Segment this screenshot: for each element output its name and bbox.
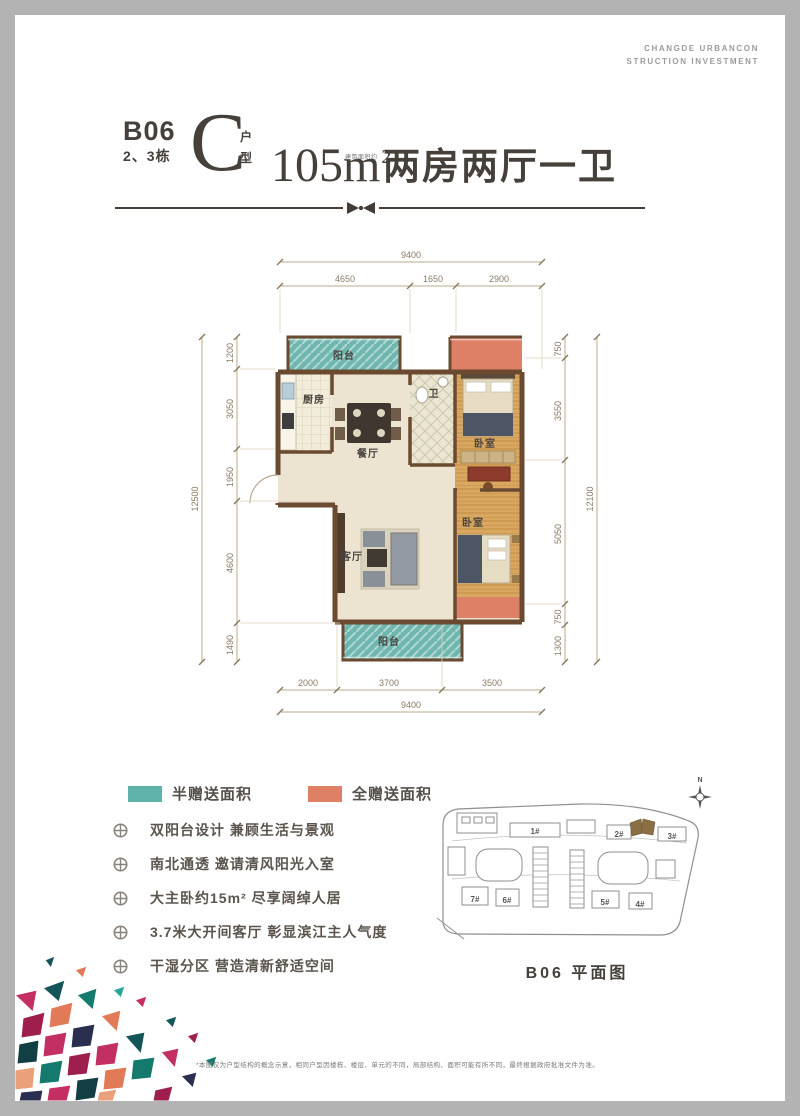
block-buildings: 2、3栋 xyxy=(123,146,171,166)
dim-right-5: 1300 xyxy=(553,636,563,656)
compass-icon: N xyxy=(688,777,712,809)
plus-circle-icon xyxy=(113,925,128,940)
area-note: 建筑面积约 xyxy=(345,132,378,184)
legend-full-gift-label: 全赠送面积 xyxy=(352,783,432,804)
mosaic-decoration xyxy=(15,940,230,1101)
plus-circle-icon xyxy=(113,891,128,906)
room-label-bedroom-bottom: 卧室 xyxy=(462,516,484,529)
dim-right-3: 5050 xyxy=(553,524,563,544)
brand-line2: STRUCTION INVESTMENT xyxy=(627,55,759,68)
feature-text: 双阳台设计 兼顾生活与景观 xyxy=(150,820,335,840)
building-label-6: 6# xyxy=(503,896,512,905)
legend-half-gift-label: 半赠送面积 xyxy=(172,783,252,804)
dim-left-5: 1490 xyxy=(225,635,235,655)
dim-top-1: 4650 xyxy=(335,274,355,284)
dim-bottom-1: 2000 xyxy=(298,678,318,688)
dim-bottom-2: 3700 xyxy=(379,678,399,688)
dim-right-4: 750 xyxy=(553,609,563,624)
legend-full-gift-swatch xyxy=(308,786,342,802)
room-label-kitchen: 厨房 xyxy=(303,393,325,406)
legend-half-gift-swatch xyxy=(128,786,162,802)
floorplan: 阳台 厨房 餐厅 卫 卧室 客厅 卧室 阳台 9400 xyxy=(185,245,615,725)
feature-item: 南北通透 邀请清风阳光入室 xyxy=(113,855,387,873)
disclaimer-text: *本图仅为户型结构的概念示意，相同户型因楼栋、楼层、单元的不同，局部结构、面积可… xyxy=(196,1059,636,1069)
feature-item: 双阳台设计 兼顾生活与景观 xyxy=(113,821,387,839)
area-value: 105m2 建筑面积约 xyxy=(271,131,391,192)
legend: 半赠送面积 全赠送面积 xyxy=(128,783,432,804)
feature-text: 3.7米大开间客厅 彰显滨江主人气度 xyxy=(150,922,387,942)
header-divider xyxy=(115,201,645,215)
compass-north-label: N xyxy=(697,777,702,784)
room-label-living: 客厅 xyxy=(340,550,363,563)
layout-description: 两房两厅一卫 xyxy=(383,136,617,190)
building-label-1: 1# xyxy=(531,827,540,836)
highlighted-building xyxy=(630,819,643,836)
room-label-bath: 卫 xyxy=(429,388,440,400)
dim-right-1: 750 xyxy=(553,341,563,356)
dim-top-total: 9400 xyxy=(401,250,421,260)
building-label-2: 2# xyxy=(615,830,624,839)
room-label-balcony-bottom: 阳台 xyxy=(378,635,400,648)
brand-line1: CHANGDE URBANCON xyxy=(627,42,759,55)
feature-item: 3.7米大开间客厅 彰显滨江主人气度 xyxy=(113,923,387,941)
dim-left-4: 4600 xyxy=(225,553,235,573)
building-label-3: 3# xyxy=(668,832,677,841)
brand-text: CHANGDE URBANCON STRUCTION INVESTMENT xyxy=(627,42,759,68)
bowtie-icon xyxy=(347,201,375,215)
room-label-dining: 餐厅 xyxy=(356,447,379,460)
room-label-bedroom-top: 卧室 xyxy=(474,437,496,450)
unit-suffix-bottom: 型 xyxy=(239,148,253,169)
dim-left-2: 3050 xyxy=(225,399,235,419)
poster-page: CHANGDE URBANCON STRUCTION INVESTMENT B0… xyxy=(15,15,785,1101)
unit-letter: C xyxy=(190,101,246,185)
dim-right-2: 3550 xyxy=(553,401,563,421)
plus-circle-icon xyxy=(113,857,128,872)
dim-bottom-total: 9400 xyxy=(401,700,421,710)
unit-type-label: 户 型 xyxy=(239,127,253,169)
siteplan-map: 1# 2# 3# 7# 6# 5# 4# N xyxy=(432,775,722,960)
divider-line-left xyxy=(115,207,343,209)
siteplan-caption: B06 平面图 xyxy=(432,959,722,983)
building-label-7: 7# xyxy=(471,895,480,904)
dim-left-total: 12500 xyxy=(190,486,200,511)
highlighted-building xyxy=(641,819,655,835)
building-label-4: 4# xyxy=(636,900,645,909)
dim-bottom-3: 3500 xyxy=(482,678,502,688)
unit-suffix-top: 户 xyxy=(239,127,253,148)
building-label-5: 5# xyxy=(601,898,610,907)
feature-text: 南北通透 邀请清风阳光入室 xyxy=(150,854,335,874)
dim-left-3: 1950 xyxy=(225,467,235,487)
dim-right-total: 12100 xyxy=(585,486,595,511)
dim-left-1: 1200 xyxy=(225,343,235,363)
dim-top-2: 1650 xyxy=(423,274,443,284)
dim-top-3: 2900 xyxy=(489,274,509,284)
block-code: B06 xyxy=(123,116,176,147)
feature-text: 大主卧约15m² 尽享阔绰人居 xyxy=(150,888,342,908)
feature-item: 大主卧约15m² 尽享阔绰人居 xyxy=(113,889,387,907)
plus-circle-icon xyxy=(113,823,128,838)
room-label-balcony-top: 阳台 xyxy=(333,349,355,362)
divider-line-right xyxy=(379,207,645,209)
siteplan-buildings xyxy=(448,813,686,909)
